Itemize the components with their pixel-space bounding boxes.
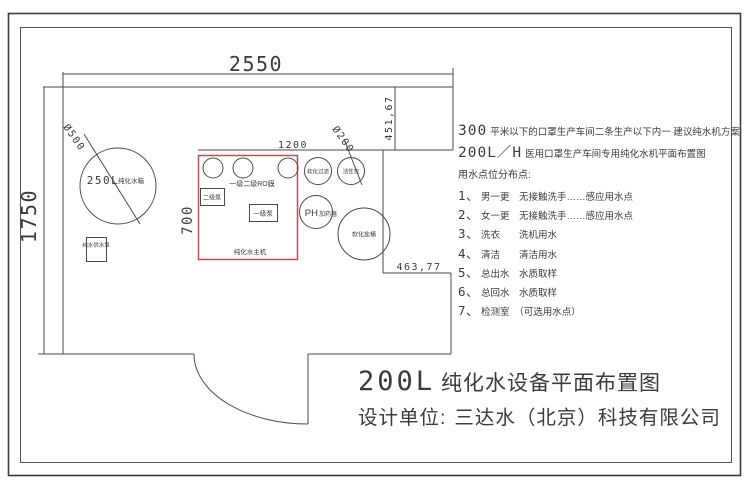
water-point-item: 1、男一更 无接触洗手……感应用水点	[458, 186, 744, 205]
item-text: 清洁 清洁用水	[481, 250, 557, 261]
softener-filter-label: 软化过滤	[307, 168, 330, 176]
main-unit-outline	[199, 156, 298, 260]
dim-700: 700	[180, 205, 196, 235]
note-line-2: 200L／H医用口罩生产车间专用纯化水机平面布置图	[458, 142, 744, 164]
designer-row: 设计单位:三达水（北京）科技有限公司	[358, 403, 721, 433]
ro-vessel-1	[203, 158, 223, 178]
salt-barrel-label: 软化盐桶	[352, 231, 376, 239]
ro-vessel-2	[233, 158, 253, 178]
stage1-pump-label: 一级泵	[253, 209, 273, 218]
water-point-item: 7、检测室 （可选用水点）	[458, 301, 744, 320]
dim-451-67: 451,67	[384, 95, 395, 140]
item-text: 男一更 无接触洗手……感应用水点	[481, 192, 633, 203]
cad-drawing-page: 2550 1750 700 1200 451,67 463,77 Ø500 25…	[0, 0, 750, 489]
tank-label-name: 纯化水箱	[118, 176, 145, 185]
door-swing-arc	[194, 354, 308, 424]
designer-value: 三达水（北京）科技有限公司	[454, 407, 721, 429]
item-number: 7、	[458, 303, 479, 318]
stage2-pump-label: 二级泵	[203, 194, 221, 202]
item-text: 洗衣 洗机用水	[481, 230, 557, 241]
title-block: 200L纯化水设备平面布置图 设计单位:三达水（北京）科技有限公司	[358, 364, 721, 433]
supply-pump-label: 纯水供水泵	[82, 241, 110, 249]
drawing-title-text: 纯化水设备平面布置图	[441, 372, 661, 395]
tank-diameter-label: Ø500	[61, 122, 88, 154]
item-text: 检测室 （可选用水点）	[481, 307, 581, 318]
note-line-1-number: 300	[458, 123, 487, 139]
item-number: 4、	[458, 246, 479, 261]
dim-1200: 1200	[278, 140, 308, 151]
supply-pump-box	[87, 238, 107, 262]
dim-2550: 2550	[229, 52, 283, 76]
item-number: 3、	[458, 226, 479, 241]
note-line-2-text: 医用口罩生产车间专用纯化水机平面布置图	[525, 149, 706, 160]
dim-1750: 1750	[17, 189, 41, 243]
ph-dosing-label-small: 加药器	[319, 210, 337, 218]
notes-block: 300平米以下的口罩生产车间二条生产以下内一 建议纯水机方案 200L／H医用口…	[458, 120, 744, 320]
note-line-1: 300平米以下的口罩生产车间二条生产以下内一 建议纯水机方案	[458, 120, 744, 142]
item-number: 6、	[458, 284, 479, 299]
item-text: 总回水 水质取样	[481, 288, 557, 299]
ro-vessel-3	[278, 158, 298, 178]
water-point-item: 5、总出水 水质取样	[458, 263, 744, 282]
item-text: 总出水 水质取样	[481, 269, 557, 280]
note-line-1-text: 平米以下的口罩生产车间二条生产以下内一 建议纯水机方案	[490, 127, 740, 138]
drawing-title-capacity: 200L	[358, 366, 435, 397]
note-line-3: 用水点位分布点:	[458, 164, 744, 186]
drawing-title: 200L纯化水设备平面布置图	[358, 364, 721, 400]
tank-label-volume: 250L	[87, 174, 120, 187]
water-point-item: 2、女一更 无接触洗手……感应用水点	[458, 205, 744, 224]
water-point-item: 4、清洁 清洁用水	[458, 244, 744, 263]
item-number: 2、	[458, 207, 479, 222]
ro-membrane-label: 一级二级RO膜	[229, 179, 275, 188]
ph-dosing-label-big: PH	[305, 208, 318, 219]
item-text: 女一更 无接触洗手……感应用水点	[481, 211, 633, 222]
dim-463-77: 463,77	[396, 262, 441, 273]
note-line-2-number: 200L／H	[458, 145, 522, 161]
water-point-item: 6、总回水 水质取样	[458, 282, 744, 301]
carbon-diameter-label: Ø200	[330, 124, 357, 156]
designer-label: 设计单位:	[358, 407, 446, 429]
water-point-item: 3、洗衣 洗机用水	[458, 224, 744, 243]
main-unit-label: 纯化水主机	[234, 247, 267, 256]
item-number: 5、	[458, 265, 479, 280]
item-number: 1、	[458, 188, 479, 203]
